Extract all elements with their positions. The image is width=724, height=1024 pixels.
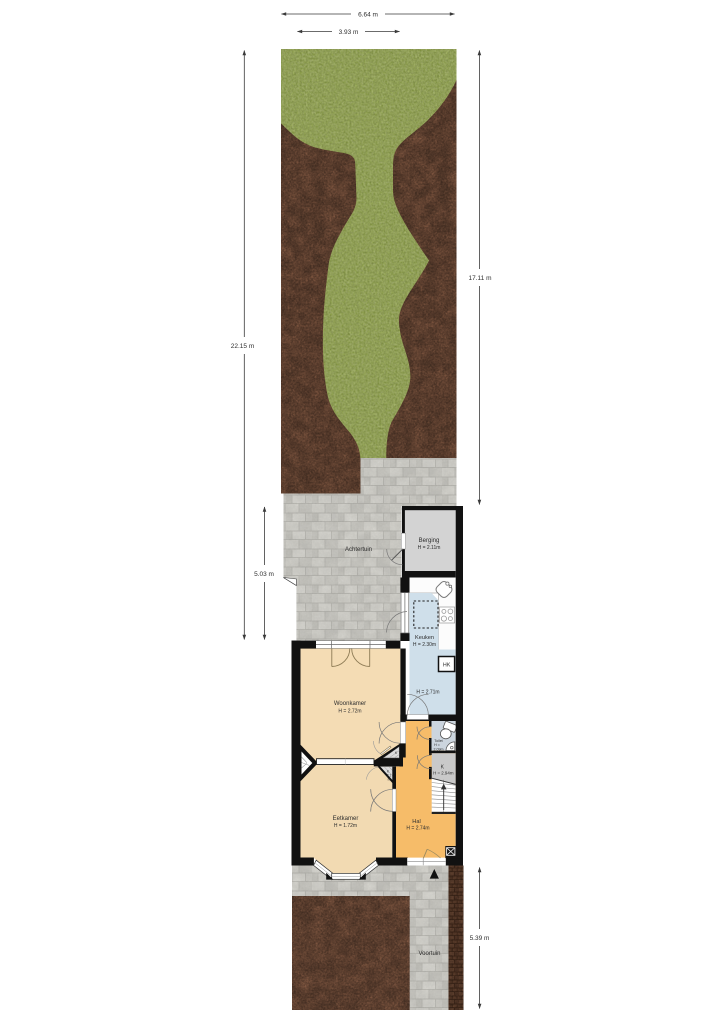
svg-text:H = 2.11m: H = 2.11m [418,545,441,551]
svg-text:Keuken: Keuken [415,635,434,641]
svg-text:17.11 m: 17.11 m [468,275,491,282]
svg-text:H = 2.94m: H = 2.94m [433,771,454,776]
svg-text:H = 2.74m: H = 2.74m [406,826,429,832]
svg-text:H = 2.30m: H = 2.30m [413,642,436,648]
svg-text:H = 2.72m: H = 2.72m [338,709,361,715]
svg-text:Woonkamer: Woonkamer [334,701,366,707]
svg-text:6.64 m: 6.64 m [358,11,378,18]
svg-text:H = 1.72m: H = 1.72m [334,823,357,829]
svg-text:Achtertuin: Achtertuin [345,547,372,553]
svg-text:3.93 m: 3.93 m [339,29,359,36]
svg-text:Berging: Berging [419,538,440,544]
svg-text:Hal: Hal [412,819,420,825]
svg-text:22.15 m: 22.15 m [231,343,255,350]
svg-text:5.03 m: 5.03 m [254,571,274,578]
svg-text:m: m [388,778,391,782]
svg-text:5.39 m: 5.39 m [470,935,490,942]
svg-text:HK: HK [443,662,451,668]
svg-text:Voortuin: Voortuin [418,951,440,957]
svg-text:Eetkamer: Eetkamer [333,816,359,822]
